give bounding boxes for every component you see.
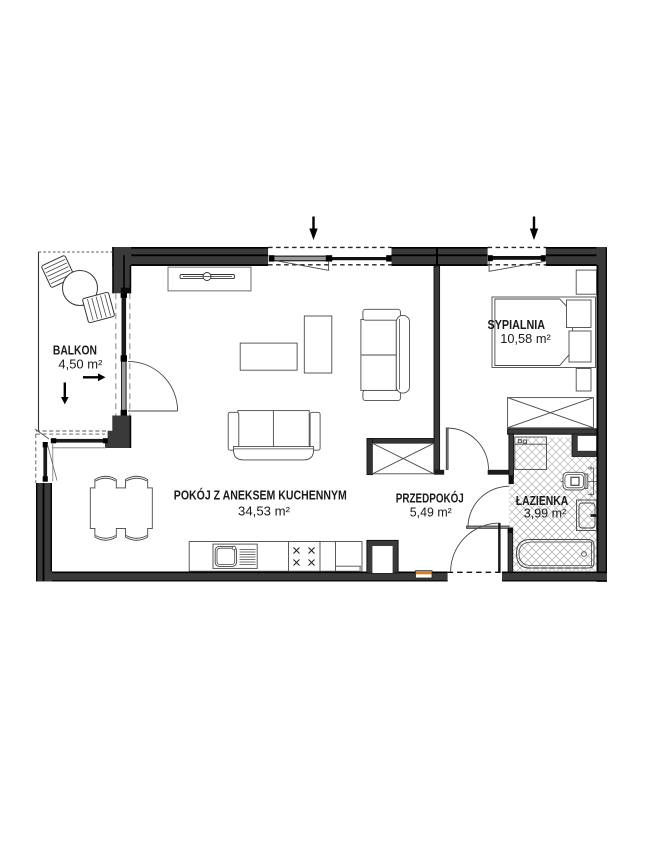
- svg-text:3,99 m²: 3,99 m²: [524, 506, 567, 521]
- svg-text:10,58 m²: 10,58 m²: [500, 331, 551, 346]
- svg-text:5,49 m²: 5,49 m²: [410, 505, 453, 520]
- svg-text:PRZEDPOKÓJ: PRZEDPOKÓJ: [396, 491, 464, 506]
- svg-text:POKÓJ Z ANEKSEM KUCHENNYM: POKÓJ Z ANEKSEM KUCHENNYM: [174, 488, 347, 503]
- svg-text:34,53 m²: 34,53 m²: [238, 504, 291, 519]
- svg-text:SYPIALNIA: SYPIALNIA: [488, 317, 546, 332]
- svg-text:BALKON: BALKON: [53, 343, 97, 358]
- svg-text:4,50 m²: 4,50 m²: [58, 357, 103, 372]
